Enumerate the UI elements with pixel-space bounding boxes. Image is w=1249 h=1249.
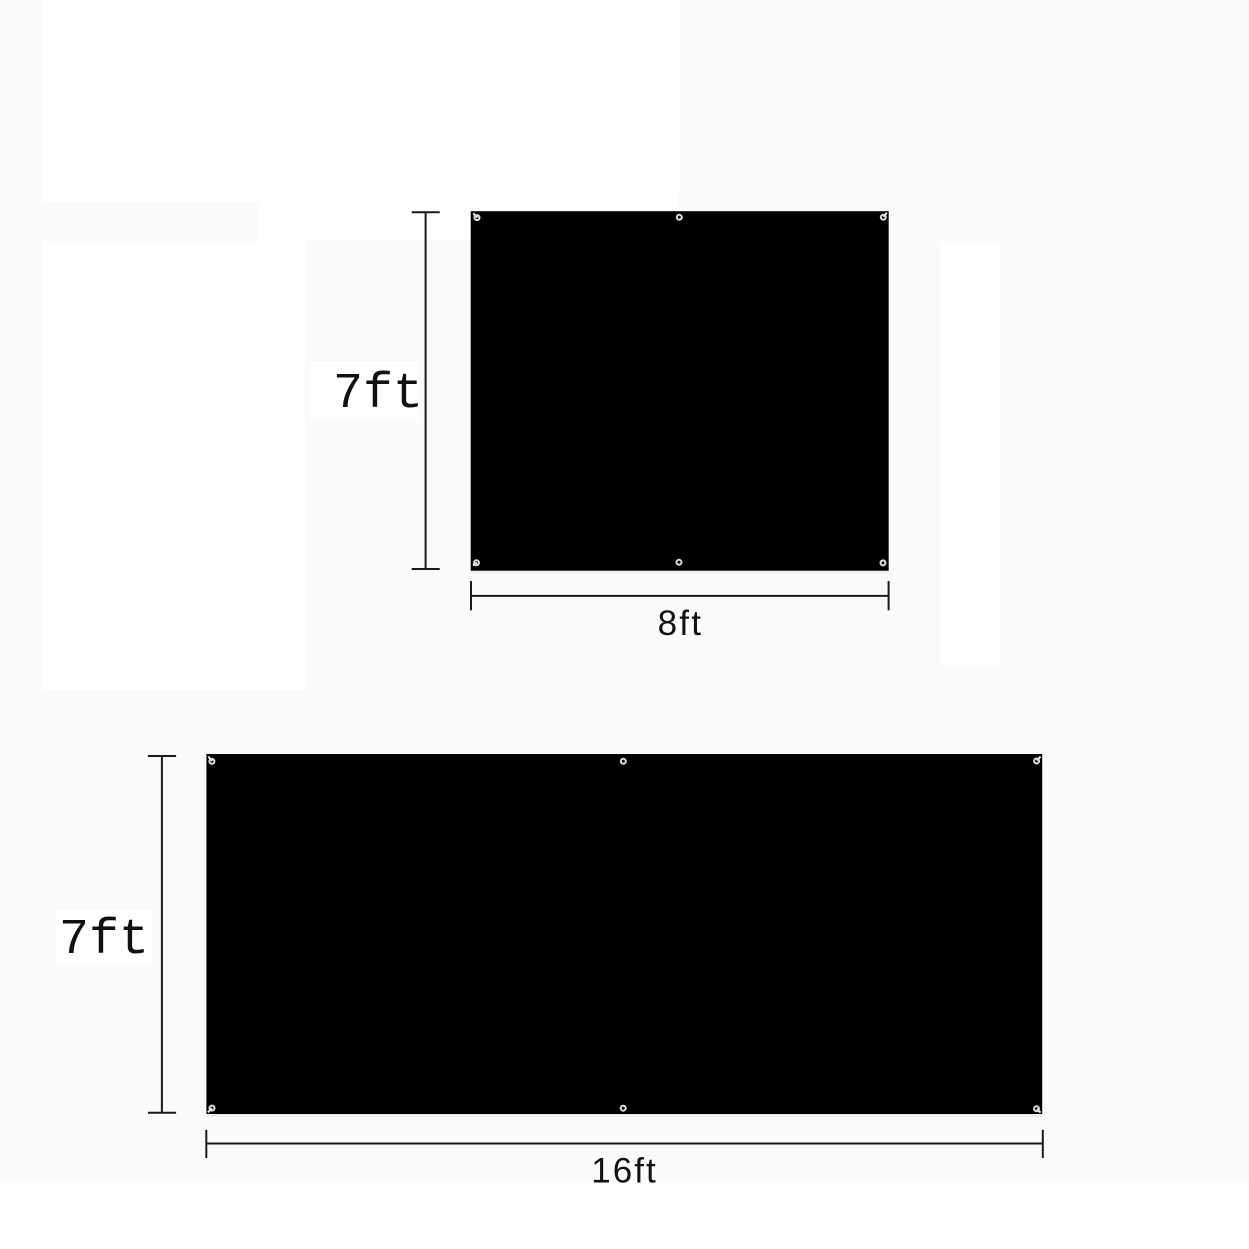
svg-text:7ft: 7ft xyxy=(333,366,423,423)
svg-text:7ft: 7ft xyxy=(59,912,149,969)
svg-text:8ft: 8ft xyxy=(658,604,704,643)
svg-text:16ft: 16ft xyxy=(591,1152,657,1191)
